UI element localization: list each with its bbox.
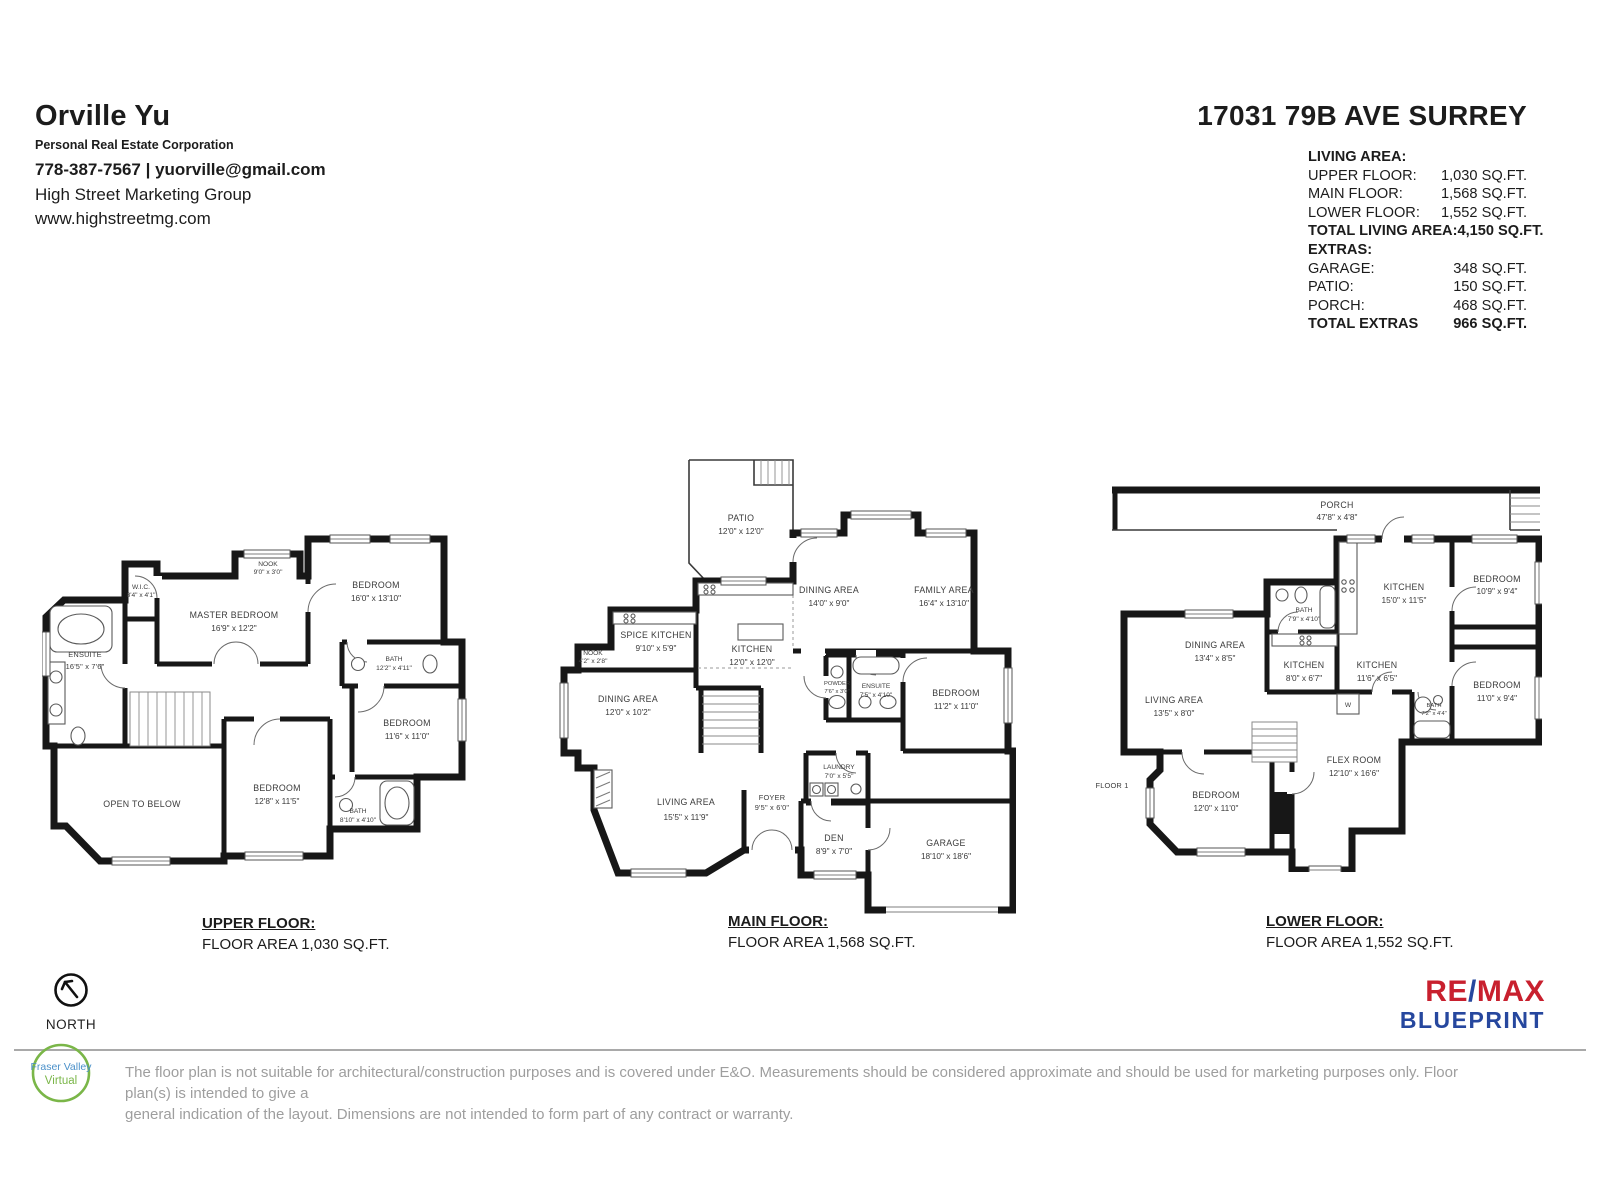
svg-text:8'10" x 4'10": 8'10" x 4'10" <box>340 817 377 824</box>
fraser-valley-virtual-logo: Fraser Valley Virtual <box>27 1040 95 1106</box>
floor1-label: FLOOR 1 <box>1095 781 1128 790</box>
svg-text:13'4" x 8'5": 13'4" x 8'5" <box>1195 653 1236 663</box>
room-label-bath2: BATH <box>349 808 366 815</box>
table-row: MAIN FLOOR:1,568 SQ.FT. <box>1308 185 1527 204</box>
room-label-flex: FLEX ROOM <box>1327 755 1382 765</box>
lower-floor-title-block: LOWER FLOOR: FLOOR AREA 1,552 SQ.FT. <box>1266 913 1454 951</box>
svg-text:12'0" x 12'0": 12'0" x 12'0" <box>729 657 775 667</box>
upper-stairs <box>130 692 210 746</box>
lower-wall-block <box>1272 792 1292 834</box>
svg-text:12'8" x 11'5": 12'8" x 11'5" <box>255 796 300 806</box>
svg-text:15'0" x 11'5": 15'0" x 11'5" <box>1382 595 1427 605</box>
svg-text:16'5" x 7'6": 16'5" x 7'6" <box>66 662 105 671</box>
room-label-spice-kitchen: SPICE KITCHEN <box>620 630 691 640</box>
lower-floor-area: FLOOR AREA 1,552 SQ.FT. <box>1266 934 1454 951</box>
room-label-patio: PATIO <box>728 513 755 523</box>
room-label-bath2: BATH <box>1426 703 1441 709</box>
lower-stairs <box>1252 722 1297 762</box>
agent-name: Orville Yu <box>35 100 326 133</box>
room-label-bedroom1: BEDROOM <box>1473 574 1521 584</box>
lower-floor-title: LOWER FLOOR: <box>1266 913 1454 930</box>
north-arrow-icon <box>51 970 91 1010</box>
room-label-porch: PORCH <box>1320 500 1353 510</box>
svg-text:18'10" x 18'6": 18'10" x 18'6" <box>921 851 971 861</box>
svg-text:16'0" x 13'10": 16'0" x 13'10" <box>351 593 401 603</box>
svg-text:10'9" x 9'4": 10'9" x 9'4" <box>1477 586 1518 596</box>
room-label-living: LIVING AREA <box>1145 695 1203 705</box>
disclaimer-line1: The floor plan is not suitable for archi… <box>125 1062 1490 1104</box>
table-row: GARAGE:348 SQ.FT. <box>1308 260 1527 279</box>
room-label-dining1: DINING AREA <box>799 585 859 595</box>
svg-text:14'0" x 9'0": 14'0" x 9'0" <box>809 598 850 608</box>
agent-phone-email: 778-387-7567 | yuorville@gmail.com <box>35 160 326 180</box>
north-label: NORTH <box>36 1017 106 1032</box>
room-label-nook: NOOK <box>258 561 278 568</box>
main-floor-title: MAIN FLOOR: <box>728 913 916 930</box>
extras-heading: EXTRAS: <box>1308 241 1372 260</box>
svg-text:11'6" x 11'0": 11'6" x 11'0" <box>385 731 429 741</box>
lower-floor-plan: PORCH 47'8" x 4'8" KITCHEN 15'0" x 11'5"… <box>1082 462 1542 872</box>
svg-text:16'4" x 13'10": 16'4" x 13'10" <box>919 598 969 608</box>
svg-text:12'0" x 12'0": 12'0" x 12'0" <box>718 526 764 536</box>
room-label-living: LIVING AREA <box>657 797 715 807</box>
room-label-nook: NOOK <box>583 650 603 657</box>
room-label-bedroom-r: BEDROOM <box>383 718 431 728</box>
room-label-bath1: BATH <box>385 656 402 663</box>
svg-text:9'5" x 6'0": 9'5" x 6'0" <box>755 803 790 812</box>
disclaimer-line2: general indication of the layout. Dimens… <box>125 1104 1490 1125</box>
agent-website: www.highstreetmg.com <box>35 209 326 229</box>
svg-text:12'10" x 16'6": 12'10" x 16'6" <box>1329 768 1379 778</box>
svg-text:13'5" x 8'0": 13'5" x 8'0" <box>1154 708 1195 718</box>
svg-text:7'5" x 4'10": 7'5" x 4'10" <box>860 692 893 699</box>
lower-porch <box>1112 490 1540 530</box>
property-address: 17031 79B AVE SURREY <box>1197 100 1527 132</box>
svg-text:7'6" x 3'0": 7'6" x 3'0" <box>824 689 849 695</box>
agent-block: Orville Yu Personal Real Estate Corporat… <box>35 100 326 229</box>
svg-text:9'10" x 5'9": 9'10" x 5'9" <box>636 643 677 653</box>
blueprint-wordmark: BLUEPRINT <box>1400 1008 1545 1032</box>
svg-text:8'4" x 4'1": 8'4" x 4'1" <box>127 592 156 599</box>
fv-logo-line2: Virtual <box>45 1075 77 1087</box>
upper-floor-title-block: UPPER FLOOR: FLOOR AREA 1,030 SQ.FT. <box>202 915 390 953</box>
room-label-wic: W.I.C. <box>132 584 150 591</box>
area-summary-table: LIVING AREA: UPPER FLOOR:1,030 SQ.FT. MA… <box>1308 148 1527 334</box>
room-label-ensuite: ENSUITE <box>862 683 891 690</box>
room-label-den: DEN <box>824 833 843 843</box>
table-row-total-extras: TOTAL EXTRAS966 SQ.FT. <box>1308 315 1527 334</box>
living-area-heading: LIVING AREA: <box>1308 148 1406 167</box>
room-label-garage: GARAGE <box>926 838 965 848</box>
svg-text:11'0" x 9'4": 11'0" x 9'4" <box>1477 693 1517 703</box>
floorplan-page: Orville Yu Personal Real Estate Corporat… <box>0 0 1600 1200</box>
svg-text:47'8" x 4'8": 47'8" x 4'8" <box>1317 512 1358 522</box>
room-label-kitchen: KITCHEN <box>732 644 773 654</box>
svg-text:12'0" x 11'0": 12'0" x 11'0" <box>1194 803 1239 813</box>
svg-text:11'6" x 6'5": 11'6" x 6'5" <box>1357 673 1397 683</box>
agent-company: High Street Marketing Group <box>35 185 326 205</box>
remax-blueprint-logo: RE/MAX BLUEPRINT <box>1400 976 1545 1032</box>
svg-text:7'9" x 4'10": 7'9" x 4'10" <box>1288 616 1321 623</box>
svg-text:7'0" x 5'5": 7'0" x 5'5" <box>825 773 854 780</box>
svg-text:12'2" x 4'11": 12'2" x 4'11" <box>376 665 412 672</box>
table-row: PORCH:468 SQ.FT. <box>1308 297 1527 316</box>
table-row: PATIO:150 SQ.FT. <box>1308 278 1527 297</box>
room-label-dining: DINING AREA <box>1185 640 1245 650</box>
svg-text:4'2" x 2'8": 4'2" x 2'8" <box>579 658 608 665</box>
room-label-bedroom2: BEDROOM <box>1473 680 1521 690</box>
table-row-total-living: TOTAL LIVING AREA:4,150 SQ.FT. <box>1308 222 1527 241</box>
svg-text:7'2" x 4'4": 7'2" x 4'4" <box>1421 711 1446 717</box>
svg-text:15'5" x 11'9": 15'5" x 11'9" <box>664 812 709 822</box>
agent-subtitle: Personal Real Estate Corporation <box>35 138 326 152</box>
svg-text:8'0" x 6'7": 8'0" x 6'7" <box>1286 673 1322 683</box>
room-label-dining2: DINING AREA <box>598 694 658 704</box>
washer-label: W <box>1345 702 1352 709</box>
room-label-laundry: LAUNDRY <box>823 764 855 771</box>
room-label-bedroom: BEDROOM <box>932 688 980 698</box>
room-label-kitchen3: KITCHEN <box>1357 660 1398 670</box>
svg-text:8'9" x 7'0": 8'9" x 7'0" <box>816 846 852 856</box>
table-row: LOWER FLOOR:1,552 SQ.FT. <box>1308 204 1527 223</box>
north-indicator: NORTH <box>36 970 106 1032</box>
footer-divider <box>14 1049 1586 1051</box>
room-label-master: MASTER BEDROOM <box>190 610 279 620</box>
disclaimer: The floor plan is not suitable for archi… <box>125 1062 1490 1125</box>
svg-text:9'0" x 3'0": 9'0" x 3'0" <box>254 569 283 576</box>
room-label-foyer: FOYER <box>759 793 785 802</box>
room-label-bedroom-b: BEDROOM <box>253 783 301 793</box>
upper-floor-plan: NOOK 9'0" x 3'0" W.I.C. 8'4" x 4'1" MAST… <box>42 514 472 894</box>
svg-text:11'2" x 11'0": 11'2" x 11'0" <box>934 701 978 711</box>
main-floor-title-block: MAIN FLOOR: FLOOR AREA 1,568 SQ.FT. <box>728 913 916 951</box>
room-label-bedroom3: BEDROOM <box>1192 790 1240 800</box>
room-label-open-below: OPEN TO BELOW <box>103 799 181 809</box>
upper-floor-area: FLOOR AREA 1,030 SQ.FT. <box>202 936 390 953</box>
table-row: UPPER FLOOR:1,030 SQ.FT. <box>1308 167 1527 186</box>
fv-logo-line1: Fraser Valley <box>30 1061 92 1073</box>
room-label-ensuite: ENSUITE <box>68 650 101 659</box>
room-label-kitchen2: KITCHEN <box>1284 660 1325 670</box>
room-label-kitchen1: KITCHEN <box>1384 582 1425 592</box>
remax-wordmark: RE/MAX <box>1400 976 1545 1008</box>
room-label-bath1: BATH <box>1295 607 1312 614</box>
main-floor-plan: PATIO 12'0" x 12'0" DINING AREA 14'0" x … <box>556 438 1016 918</box>
room-label-bedroom-tr: BEDROOM <box>352 580 400 590</box>
main-floor-area: FLOOR AREA 1,568 SQ.FT. <box>728 934 916 951</box>
room-label-family: FAMILY AREA <box>914 585 974 595</box>
svg-text:16'9" x 12'2": 16'9" x 12'2" <box>211 623 257 633</box>
upper-floor-title: UPPER FLOOR: <box>202 915 390 932</box>
room-label-powder: POWDER <box>824 681 850 687</box>
svg-text:12'0" x 10'2": 12'0" x 10'2" <box>605 707 651 717</box>
